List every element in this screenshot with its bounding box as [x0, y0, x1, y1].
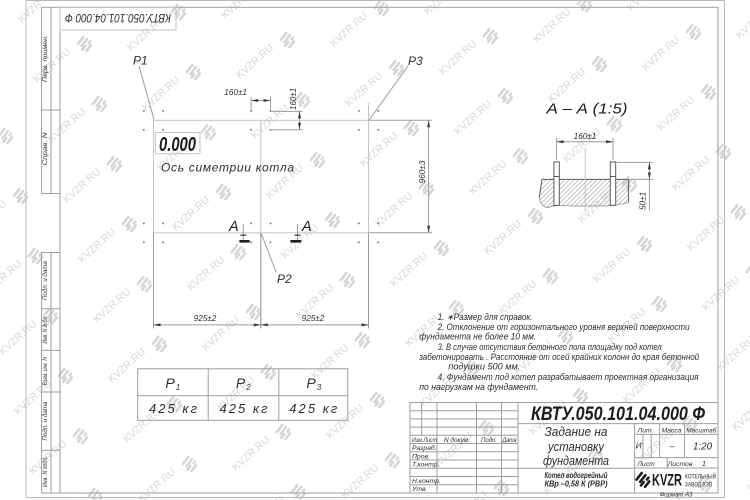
svg-text:забетонировать . Расстояние: забетонировать . Расстояние от осей край…: [418, 352, 699, 362]
svg-text:фундамента не более 10 мм.: фундамента не более 10 мм.: [419, 332, 536, 342]
svg-text:1. ∗Размер для справок.: 1. ∗Размер для справок.: [438, 312, 533, 322]
svg-text:N докум.: N докум.: [444, 436, 470, 444]
svg-text:фундамента: фундамента: [543, 453, 609, 468]
svg-text:–: –: [669, 441, 675, 451]
svg-text:Подп. и дата: Подп. и дата: [41, 261, 49, 300]
svg-text:Задание на: Задание на: [545, 424, 608, 439]
svg-text:2. Отклонение от горизонтал: 2. Отклонение от горизонтального уровня …: [437, 322, 690, 332]
svg-text:Лит.: Лит.: [637, 428, 654, 435]
svg-text:Масса: Масса: [662, 428, 682, 435]
svg-text:Пров.: Пров.: [412, 453, 430, 460]
svg-text:Справ. N: Справ. N: [42, 132, 49, 165]
svg-text:КВр –0,58 К (РВР): КВр –0,58 К (РВР): [545, 480, 608, 489]
svg-text:3: 3: [317, 383, 322, 392]
svg-text:160±1: 160±1: [574, 132, 597, 141]
svg-text:Р2: Р2: [277, 272, 292, 286]
svg-text:Н.контр.: Н.контр.: [412, 478, 441, 485]
svg-text:4. Фундамент под котел раз: 4. Фундамент под котел разрабатывает про…: [438, 372, 699, 382]
svg-text:50±1: 50±1: [639, 192, 648, 210]
svg-text:А – А (1:5): А – А (1:5): [545, 101, 627, 118]
svg-text:Изм.Лист: Изм.Лист: [412, 437, 437, 444]
svg-text:Р: Р: [236, 375, 246, 391]
svg-text:1: 1: [702, 459, 706, 468]
svg-text:1: 1: [176, 383, 180, 392]
svg-text:КВТУ.050.101.04.000 Ф: КВТУ.050.101.04.000 Ф: [531, 404, 705, 425]
svg-text:подушки 500 мм.: подушки 500 мм.: [448, 362, 520, 372]
svg-text:1:20: 1:20: [693, 442, 713, 453]
svg-text:160±1: 160±1: [224, 88, 247, 97]
svg-text:Инв. N подл.: Инв. N подл.: [41, 456, 49, 487]
svg-text:КВТУ.050.101.04.000 Ф: КВТУ.050.101.04.000 Ф: [65, 11, 171, 23]
svg-text:Подп. и дата: Подп. и дата: [41, 401, 49, 440]
svg-text:А: А: [228, 219, 239, 235]
svg-text:0.000: 0.000: [159, 134, 196, 156]
svg-text:2: 2: [245, 383, 251, 392]
svg-text:Подп.: Подп.: [481, 436, 497, 444]
svg-text:KVZR: KVZR: [652, 472, 682, 490]
svg-text:Утв.: Утв.: [411, 486, 428, 493]
svg-text:по нагрузкам на фундамент.: по нагрузкам на фундамент.: [419, 382, 538, 392]
svg-text:Инв. N дубл.: Инв. N дубл.: [41, 315, 49, 343]
svg-text:Т.контр.: Т.контр.: [412, 462, 440, 469]
svg-text:Лист: Лист: [636, 461, 655, 468]
svg-text:925±2: 925±2: [194, 314, 217, 323]
svg-text:Разраб.: Разраб.: [412, 444, 437, 452]
svg-text:Формат А3: Формат А3: [660, 492, 693, 499]
svg-text:А: А: [301, 219, 312, 235]
svg-text:Р3: Р3: [408, 54, 423, 68]
svg-text:ЗАВОД РЭП: ЗАВОД РЭП: [685, 483, 712, 489]
svg-text:Р: Р: [306, 375, 316, 391]
svg-text:960±3: 960±3: [418, 160, 427, 183]
svg-text:925±2: 925±2: [302, 314, 325, 323]
svg-text:Р: Р: [165, 375, 175, 391]
svg-text:установку: установку: [547, 439, 605, 454]
svg-text:Р1: Р1: [133, 54, 148, 68]
svg-text:Ось симетрии котла: Ось симетрии котла: [161, 161, 294, 175]
svg-text:И: И: [636, 441, 643, 451]
svg-text:Перв. примен.: Перв. примен.: [42, 35, 49, 82]
svg-text:160±1: 160±1: [289, 88, 298, 110]
svg-text:Дата: Дата: [502, 437, 517, 444]
svg-text:Масштаб: Масштаб: [686, 427, 717, 435]
svg-text:3. В случае отсутствия бет: 3. В случае отсутствия бетонного пола пл…: [438, 342, 662, 352]
svg-text:КОТЕЛЬНЫЙ: КОТЕЛЬНЫЙ: [685, 473, 716, 481]
svg-text:Листов: Листов: [667, 461, 693, 468]
svg-text:Взам. инв. N: Взам. инв. N: [42, 357, 49, 385]
